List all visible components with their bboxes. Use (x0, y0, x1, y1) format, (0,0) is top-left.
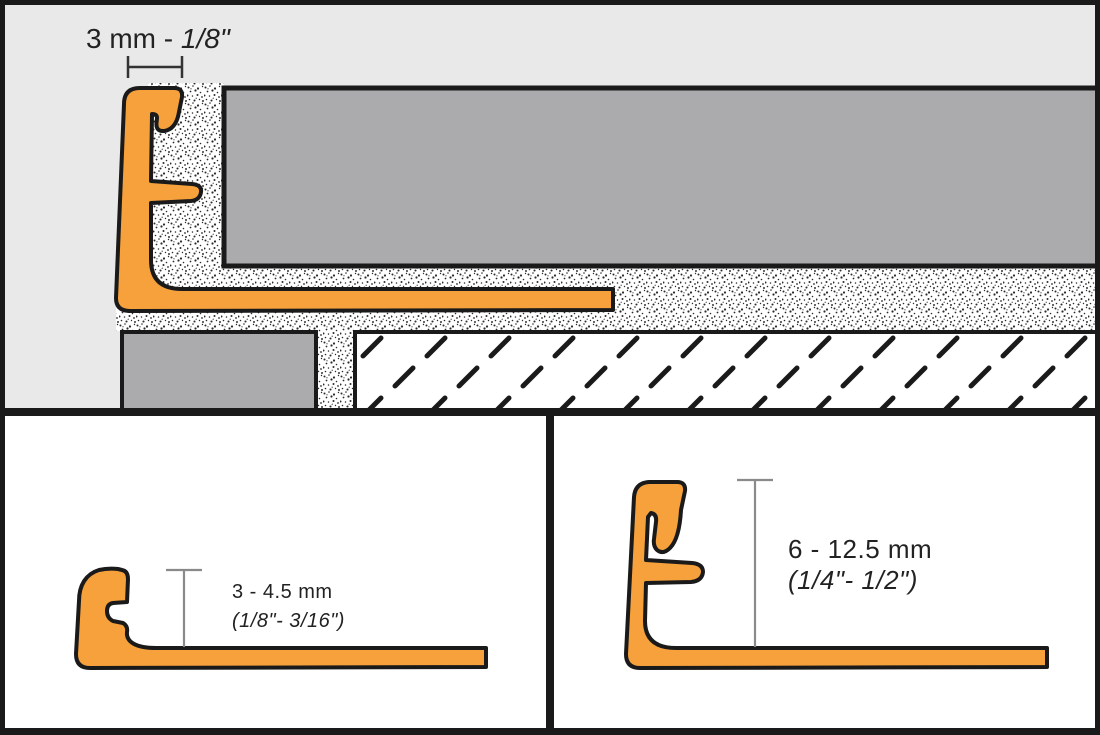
low-profile-dimension-line (166, 570, 202, 647)
low-profile-drawing (5, 416, 546, 728)
tile-block (224, 88, 1095, 266)
top-dimension-imperial: 1/8" (181, 23, 230, 54)
top-dimension-label: 3 mm - 1/8" (86, 23, 230, 55)
top-dimension-line (128, 56, 182, 78)
top-dimension-metric: 3 mm - (86, 23, 181, 54)
installation-drawing (5, 5, 1095, 408)
installation-cross-section-panel: 3 mm - 1/8" (5, 5, 1095, 408)
profile-diagram-frame: 3 mm - 1/8" 3 - 4.5 mm (1/8"- 3/16") 6 -… (0, 0, 1100, 735)
high-profile-panel: 6 - 12.5 mm (1/4"- 1/2") (554, 416, 1095, 728)
high-profile-dimension-label: 6 - 12.5 mm (1/4"- 1/2") (788, 534, 932, 596)
low-profile-panel: 3 - 4.5 mm (1/8"- 3/16") (5, 416, 546, 728)
floor-covering-block (122, 332, 316, 408)
low-profile-imperial: (1/8"- 3/16") (232, 607, 345, 636)
low-profile-dimension-label: 3 - 4.5 mm (1/8"- 3/16") (232, 578, 345, 636)
low-profile-metric: 3 - 4.5 mm (232, 578, 345, 607)
high-profile-metric: 6 - 12.5 mm (788, 534, 932, 565)
mortar-strip-stipple (318, 300, 353, 408)
high-profile-imperial: (1/4"- 1/2") (788, 565, 932, 596)
high-profile-dimension-line (737, 480, 773, 647)
substrate-hatch (355, 332, 1095, 408)
